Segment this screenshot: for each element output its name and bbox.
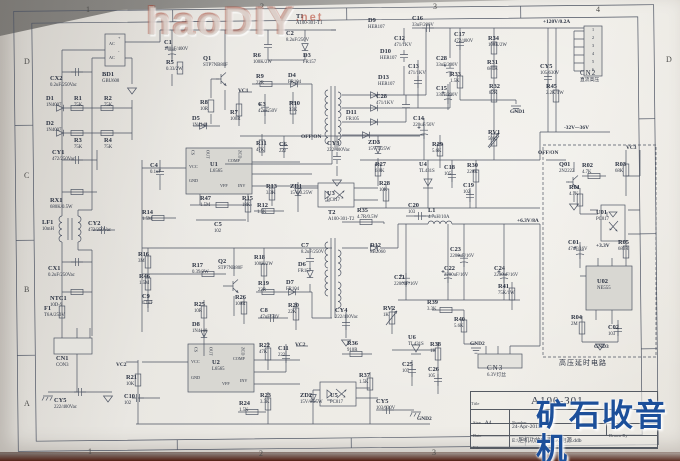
- label-C20: C20103: [408, 203, 419, 215]
- label-C15: C1533uF/200V: [436, 86, 458, 98]
- label-D6: D6FR157: [298, 262, 311, 274]
- crystalradio-watermark: 矿石收音机 www.crystalradio.cn: [536, 399, 680, 461]
- label-OUT: OUT: [208, 347, 213, 356]
- label-ZCD: ZCD: [240, 347, 245, 355]
- label-R11: R1147K: [256, 141, 267, 153]
- label-CN1: CN1CON3: [56, 356, 69, 368]
- label-U3: U3PC817: [327, 191, 340, 203]
- label-T2: T2A100-301-T2: [328, 210, 354, 222]
- label-RV2: RV21K: [383, 306, 395, 318]
- label-D10: D10HER107: [380, 49, 397, 61]
- label-4: 4: [596, 6, 600, 15]
- label-R25: R2510R: [194, 302, 205, 314]
- label-R15: R1518K: [242, 196, 253, 208]
- label-R01: R014.7K: [569, 185, 580, 197]
- label-U01: U01PC817: [596, 210, 609, 222]
- label-4: 4: [592, 52, 594, 57]
- label-CY5: CY5222/400Vac: [54, 398, 77, 410]
- label-C13: C13471/1KV: [408, 64, 426, 76]
- label-R46: R461.5M: [139, 274, 150, 286]
- label-CN3: CN36.3V灯丝: [487, 365, 506, 378]
- label-R32: R3282K: [489, 84, 500, 96]
- label-CY4: CY4222/400Vac: [335, 308, 358, 320]
- label-R17: R170.39/2W: [192, 263, 209, 275]
- label-R5: R50.33/2W: [166, 60, 183, 72]
- haodiy-logo-suffix: .net: [296, 12, 324, 24]
- label-C12: C12471/1KV: [394, 36, 412, 48]
- label-+6.3V8A: +6.3V/8A: [517, 219, 539, 225]
- label-C16: C1633uF/200V: [412, 16, 434, 28]
- label-: 高压延时电路: [559, 360, 607, 368]
- label-D7: D7FR104: [286, 280, 299, 292]
- label-VFF: VFF: [222, 382, 230, 387]
- label-CN2: CN2直流高压: [580, 70, 599, 83]
- label-COMP: COMP: [228, 159, 240, 164]
- label-VCC: VCC: [191, 360, 200, 365]
- label-RV1: RV150K: [488, 130, 500, 142]
- label-R38: R381K: [430, 342, 441, 354]
- label-C14: C14220uF/50V: [413, 116, 435, 128]
- label-3: 3: [592, 44, 594, 49]
- label-R27: R276.8K: [375, 162, 386, 174]
- label-R29: R295.6K: [432, 142, 443, 154]
- label-C5: C5102: [214, 222, 222, 234]
- label-+120V0.2A: +120V/0.2A: [543, 20, 570, 26]
- label-C23: C232200uF/16V: [450, 247, 474, 259]
- label-D8: D81N4148: [192, 322, 207, 334]
- label-GND2: GND2: [417, 417, 432, 423]
- label-6: 6: [592, 68, 594, 73]
- label-R21: R2110K: [126, 375, 137, 387]
- label-D2: D21N4007: [46, 121, 61, 133]
- label-A: A: [24, 400, 30, 409]
- label-D12: D12SB2060: [370, 243, 385, 255]
- crystalradio-name: 矿石收音机: [536, 399, 680, 461]
- label-D: D: [666, 56, 672, 65]
- label-VC2: VC2: [116, 363, 126, 369]
- label-R26: R26100R: [235, 295, 246, 307]
- label--: -: [118, 50, 119, 55]
- label-R31: R31680K: [487, 60, 498, 72]
- label-GND: GND: [191, 376, 200, 381]
- label-R8: R810R: [200, 100, 208, 112]
- label-C3: C347uF/50V: [258, 102, 277, 114]
- label-AC: AC: [109, 42, 115, 47]
- label-D5: D51N4148: [192, 116, 207, 128]
- label-C22: C222200uF/16V: [444, 266, 468, 278]
- label-C25: C25105: [402, 362, 413, 374]
- label-C02: C02103: [608, 325, 619, 337]
- label-3: 3: [433, 3, 437, 12]
- label-C11: C11222: [278, 346, 289, 358]
- label-R19: R1922R: [258, 281, 269, 293]
- label-R40: R405.6K: [454, 317, 465, 329]
- label-+3.3V: +3.3V: [596, 244, 610, 250]
- label-C9: C90.1uF: [142, 294, 153, 306]
- label-D3: D3FR157: [303, 53, 316, 65]
- label-R1: R175K: [74, 96, 82, 108]
- label-1: 1: [86, 6, 90, 15]
- label-1: 1: [88, 448, 92, 457]
- label-GND2: GND2: [470, 342, 485, 348]
- label-R3: R375K: [74, 138, 82, 150]
- label-F1: F1T6A/250V: [44, 306, 65, 318]
- label-R12: R121.5K: [257, 203, 268, 215]
- label-R2: R275K: [104, 96, 112, 108]
- label-R10: R1033K: [289, 101, 300, 113]
- haodiy-logo-text: haoDIY: [146, 0, 296, 44]
- label-BD1: BD1GBU608: [102, 72, 119, 84]
- label-R34: R34100K/2W: [488, 36, 507, 48]
- label-R36: R36910R: [347, 341, 358, 353]
- label-VCC: VCC: [189, 165, 198, 170]
- label-C28: C2833uF/200V: [436, 56, 458, 68]
- label-OFFON: OFF/ON: [538, 151, 558, 157]
- label-D11: D11FR105: [346, 110, 359, 122]
- label-U5: U5PC817: [330, 393, 343, 405]
- label-R7: R7100R: [230, 110, 240, 122]
- label-2: 2: [259, 450, 263, 459]
- label-COMP: COMP: [233, 357, 245, 362]
- label-U6: U6TL431S: [408, 335, 424, 347]
- label-1: 1: [592, 28, 594, 33]
- label-CY5: CY5105/630V: [540, 64, 559, 76]
- schematic-labels: 1234123DCBADCX20.2uF/250VacD11N4007R175K…: [0, 0, 680, 461]
- label-CY3: CY3222/400Vac: [327, 141, 350, 153]
- label-Q01: Q012N2222: [559, 162, 574, 174]
- label-D: D: [24, 58, 30, 67]
- label-CX2: CX20.2uF/250Vac: [50, 76, 77, 88]
- label-R4: R475K: [104, 138, 112, 150]
- label-C18: C18105: [444, 165, 455, 177]
- label-GND: GND: [189, 179, 198, 184]
- label-CY1: CY1472/250Vac: [52, 150, 75, 162]
- label-R33: R331.5K: [450, 72, 461, 84]
- label-R20: R2022K: [288, 303, 299, 315]
- label-ZD2: ZD215V/0.25W: [300, 393, 323, 405]
- label-VC3: VC3: [626, 146, 636, 152]
- label-CS: CS: [190, 150, 195, 155]
- label-LF1: LF110mH: [42, 220, 54, 232]
- label-B: B: [24, 286, 29, 295]
- label-C21: C212200uF/16V: [394, 275, 418, 287]
- label-R03: R0368K: [615, 162, 626, 174]
- label-C10: C10102: [124, 394, 135, 406]
- label-C19: C19102: [463, 183, 474, 195]
- label-R35: R354.7R/0.5W: [357, 208, 378, 220]
- label-U1: U1L6565: [210, 162, 223, 174]
- label-R02: R024.7K: [582, 163, 593, 175]
- label-VC1: VC1: [238, 89, 248, 95]
- label-C17: C17472/400V: [454, 32, 473, 44]
- label-5: 5: [592, 60, 594, 65]
- label-D9: D9HER107: [368, 18, 385, 30]
- label-R16: R163M: [138, 252, 149, 264]
- label-+: +: [118, 36, 120, 41]
- label-RX1: RX1680K/0.5W: [50, 198, 73, 210]
- schematic-photo: 1234123DCBADCX20.2uF/250VacD11N4007R175K…: [0, 0, 680, 461]
- label-R41: R4175K/1W: [498, 284, 515, 296]
- label-CX1: CX10.2uF/250Vac: [48, 266, 75, 278]
- label-GND3: GND3: [594, 345, 609, 351]
- label-C7: C78.2uF/250V: [301, 243, 324, 255]
- label-R04: R042M: [571, 315, 582, 327]
- label-C01: C0147uF/16V: [568, 240, 587, 252]
- label-R28: R2810K: [379, 181, 390, 193]
- label-Q1: Q1STP7NB80F: [203, 56, 228, 68]
- label-R23: R233.3K: [260, 393, 271, 405]
- label-R22: R2247K: [259, 343, 270, 355]
- label-R18: R18100K/2W: [254, 255, 273, 267]
- label-U4: U4TL431S: [419, 162, 435, 174]
- label-CY2: CY2472/250Vac: [88, 221, 111, 233]
- label-R24: R241.5K: [239, 401, 250, 413]
- label-C: C: [24, 172, 29, 181]
- label-INV: INV: [240, 379, 247, 384]
- label-GND1: GND1: [510, 110, 525, 116]
- label-R13: R133.3K: [266, 184, 277, 196]
- haodiy-watermark: haoDIY.net: [146, 0, 323, 45]
- label-R05: R05680R: [618, 240, 629, 252]
- label-VC2: VC2: [295, 343, 305, 349]
- label-C8: C847uF/50V: [260, 308, 279, 320]
- label-OUT: OUT: [205, 150, 210, 159]
- label-3: 3: [432, 449, 436, 458]
- label-R45: R452.2K/1W: [546, 84, 564, 96]
- label--32V-36V: -32V~-36V: [564, 126, 589, 132]
- label-U2: U2L6565: [212, 360, 225, 372]
- label-ZD3: ZD315V/0.25W: [368, 140, 391, 152]
- label-R30: R30220K: [467, 163, 478, 175]
- label-VFF: VFF: [220, 184, 228, 189]
- label-ZD1: ZD115V/0.25W: [290, 184, 313, 196]
- label-R37: R371.5K: [359, 373, 370, 385]
- label-CS: CS: [193, 347, 198, 352]
- label-C4: C40.1uF: [150, 163, 161, 175]
- label-INV: INV: [238, 184, 245, 189]
- label-C6: C6222: [279, 142, 287, 154]
- label-C26: C26105: [428, 367, 439, 379]
- label-CY5: CY5103/630V: [376, 399, 395, 411]
- label-2: 2: [592, 36, 594, 41]
- label-D4: D4FR104: [288, 73, 301, 85]
- label-D1: D11N4007: [46, 96, 61, 108]
- label-R39: R393.3K: [427, 300, 438, 312]
- label-R14: R141.5M: [142, 210, 153, 222]
- label-L1: L14.7uH/10A: [428, 208, 449, 220]
- label-C28: C28471/1KV: [376, 94, 394, 106]
- label-OFFON: OFF/ON: [301, 135, 321, 141]
- label-R47: R471.5M: [200, 196, 211, 208]
- label-R9: R922R: [256, 74, 264, 86]
- label-Q2: Q2STP7NB80F: [218, 259, 243, 271]
- label-R6: R6100K/2W: [253, 53, 272, 65]
- label-AC: AC: [109, 56, 115, 61]
- label-C24: C242200uF/16V: [494, 266, 518, 278]
- label-U02: U02NE555: [597, 279, 611, 291]
- label-D13: D13HER107: [378, 75, 395, 87]
